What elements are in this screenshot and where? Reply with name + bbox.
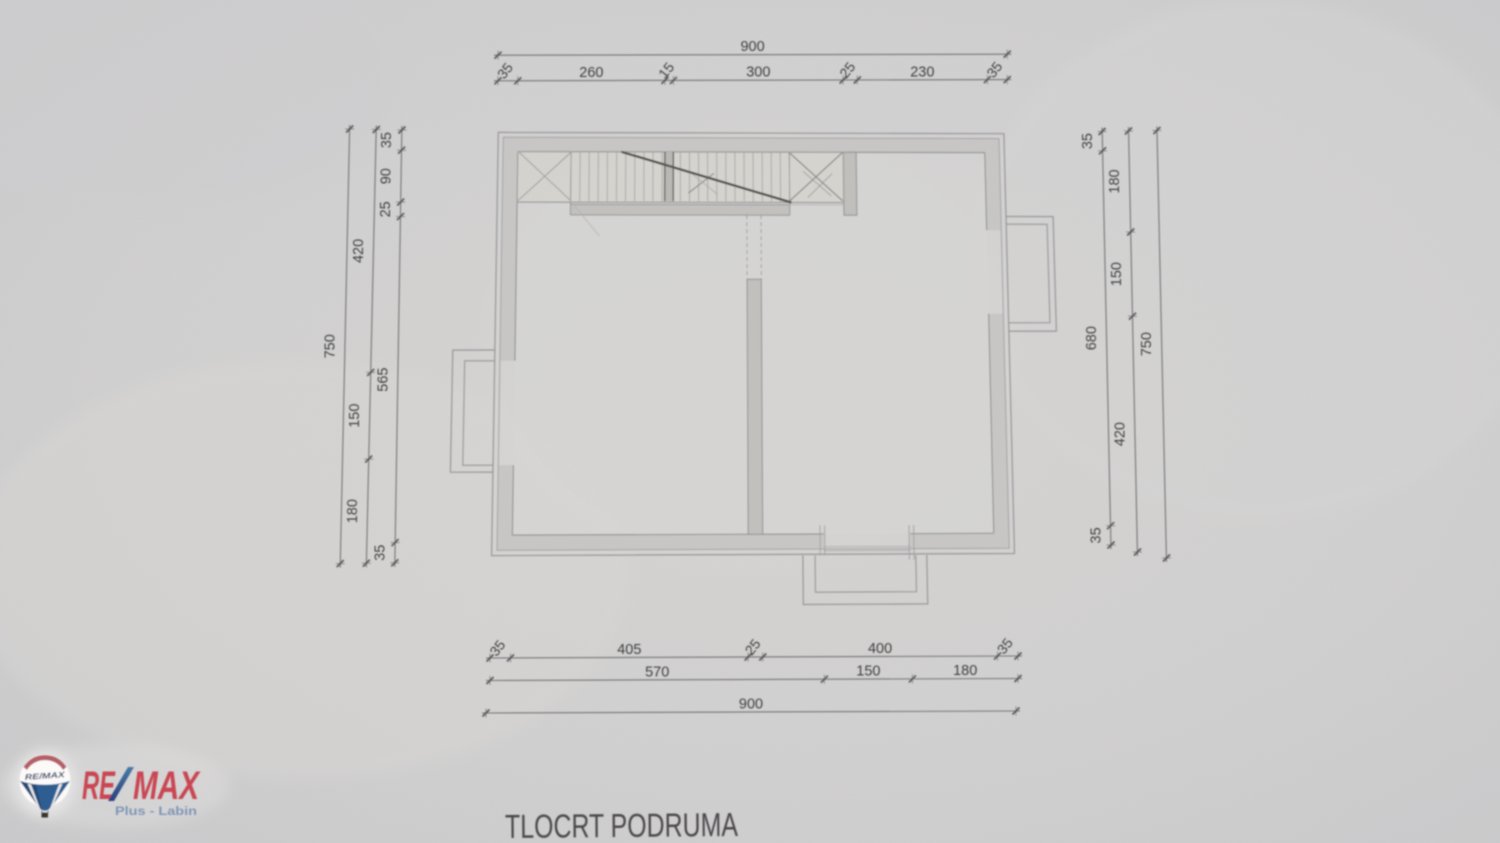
svg-text:900: 900 [740, 39, 764, 55]
svg-text:TLOCRT PODRUMA: TLOCRT PODRUMA [505, 806, 738, 843]
svg-text:MAX: MAX [133, 764, 201, 808]
svg-text:150: 150 [1109, 262, 1125, 286]
svg-text:260: 260 [579, 65, 603, 81]
svg-text:150: 150 [347, 404, 363, 428]
svg-text:Plus - Labin: Plus - Labin [115, 806, 197, 818]
svg-text:35: 35 [1080, 133, 1096, 149]
svg-text:565: 565 [375, 367, 391, 391]
svg-text:420: 420 [1113, 422, 1129, 446]
svg-text:180: 180 [345, 499, 361, 523]
svg-text:90: 90 [379, 168, 395, 184]
svg-text:35: 35 [373, 545, 389, 561]
svg-text:400: 400 [868, 641, 892, 657]
svg-text:405: 405 [617, 642, 641, 658]
svg-text:750: 750 [322, 334, 338, 358]
svg-text:570: 570 [645, 664, 669, 680]
svg-text:750: 750 [1139, 332, 1155, 356]
svg-text:420: 420 [351, 239, 367, 263]
svg-text:180: 180 [1107, 169, 1123, 193]
svg-text:300: 300 [746, 65, 770, 81]
svg-text:680: 680 [1084, 326, 1100, 350]
svg-text:35: 35 [379, 132, 395, 148]
svg-text:180: 180 [953, 663, 977, 679]
svg-text:25: 25 [378, 201, 394, 217]
svg-text:150: 150 [856, 664, 880, 680]
svg-text:230: 230 [910, 64, 934, 80]
svg-text:900: 900 [739, 697, 763, 713]
svg-text:35: 35 [1088, 527, 1104, 543]
svg-text:RE: RE [82, 764, 116, 808]
